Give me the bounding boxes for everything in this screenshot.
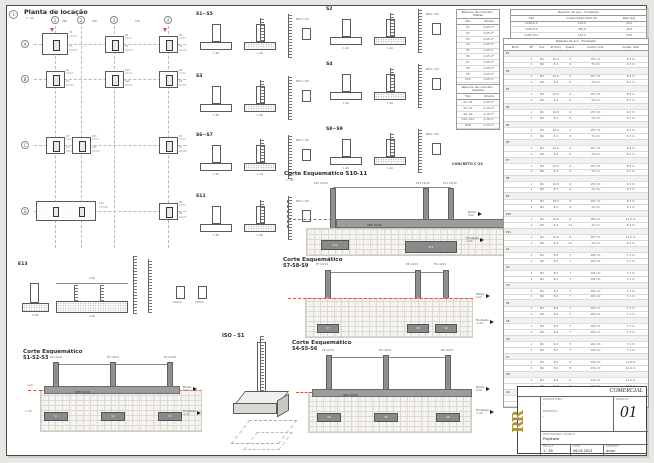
rebar-elevation <box>288 76 292 120</box>
table-cell: 1 <box>527 360 536 365</box>
table-cell: N1 <box>536 360 549 365</box>
table-cell: 0.05 m³ <box>479 37 499 42</box>
table-cell: N1 <box>536 128 549 133</box>
plan-footing <box>42 33 68 55</box>
table-cell: N2 <box>536 295 549 300</box>
footing: S2 <box>101 412 125 421</box>
pilar-size: 19/19 <box>179 205 186 208</box>
footing: S4 <box>317 413 341 422</box>
table-cell <box>504 253 527 258</box>
table-cell <box>504 378 527 383</box>
table-steel-summary: Resumo de aço - FundaçãoTipoComprimento … <box>510 9 647 40</box>
footing-label: S4 <box>327 416 330 419</box>
table-cell: 1 <box>527 378 536 383</box>
table-cell: 0.05 m³ <box>479 60 499 65</box>
plan-grid-bubble: C <box>21 141 29 149</box>
section-cut-flag <box>163 28 167 32</box>
level-flag-icon <box>478 212 482 216</box>
detail-label: S1~S5 <box>196 12 213 17</box>
divider <box>603 444 604 455</box>
table-cell: 102 cm <box>577 324 613 329</box>
stirrup-icon <box>176 286 185 299</box>
footing: S10 <box>321 240 349 250</box>
dim-text: 1.40 <box>374 167 406 170</box>
plan-footing <box>46 71 65 88</box>
rebar <box>260 200 264 226</box>
dim-text: 0.60 <box>22 314 49 317</box>
table-cell: 6.3 <box>549 241 563 246</box>
table-cell: 7 <box>563 348 577 353</box>
rebar-elevation <box>148 259 152 313</box>
base-outline <box>374 92 406 100</box>
dim-line <box>327 272 446 273</box>
table-cell: N2 <box>536 223 549 228</box>
base-outline <box>330 157 362 165</box>
base-outline <box>200 104 232 112</box>
table-cell: 187 cm <box>577 235 613 240</box>
table-cell: 6.7 m <box>613 63 648 68</box>
table-cell: 10.0 <box>549 92 563 97</box>
divider <box>570 444 571 455</box>
table-cell: 6.3 <box>549 170 563 175</box>
table-cell <box>504 271 527 276</box>
table-cell: N2 <box>536 134 549 139</box>
table-cell: 1 <box>527 146 536 151</box>
table-cell: 11.9 m <box>613 366 648 371</box>
dim-text: 1.40 <box>244 234 276 237</box>
rebar-note: Ø8.0 c/15 <box>296 200 309 203</box>
table-cell: N1 <box>536 217 549 222</box>
table-cell: 4 <box>563 128 577 133</box>
table-cell: 0.74 m³ <box>479 124 499 129</box>
table-cell: 8.0 <box>549 253 563 258</box>
table-cell: 1 <box>527 200 536 205</box>
column-stub <box>53 141 60 152</box>
table-cell <box>504 241 527 246</box>
plan-footing <box>159 203 178 220</box>
level-elev: -1.40 <box>466 240 479 243</box>
plan-grid-line <box>114 26 115 248</box>
plan-dim: 260 <box>62 21 67 24</box>
table-cell: 74 cm <box>577 170 613 175</box>
table-cell: 8.0 <box>549 324 563 329</box>
table-cell: 8.0 <box>549 271 563 276</box>
table-cell: 7.1 m <box>613 312 648 317</box>
table-cell: 6.3 m <box>613 110 648 115</box>
table-cell: 10.0 <box>549 164 563 169</box>
table-cell: 6.3 m <box>613 200 648 205</box>
table-cell: 4 <box>563 75 577 80</box>
footing-size: 40x60 <box>179 50 187 53</box>
drawn-value: Autor <box>606 449 615 453</box>
grade-beam: VB1 15/30 <box>336 219 516 228</box>
table-cell: 6.7 m <box>613 80 648 85</box>
table-cell: 4 <box>563 200 577 205</box>
table-cell: 0.26 m³ <box>479 118 499 123</box>
table-cell: 8.0 <box>549 360 563 365</box>
dim-text: 1.20 <box>374 47 406 50</box>
footing: S8 <box>407 324 429 333</box>
table-cell <box>504 98 527 103</box>
column-outline <box>342 74 351 92</box>
dim-line <box>333 187 451 188</box>
table-cell <box>504 324 527 329</box>
table-cell: 1 <box>527 164 536 169</box>
plan-dim: 540 <box>135 21 140 24</box>
table-cell: 8.0 <box>549 348 563 353</box>
table-cell: N2 <box>536 366 549 371</box>
table-cell: 9 <box>563 188 577 193</box>
sheet-number: 01 <box>620 402 637 422</box>
table-cell: 132 cm <box>577 360 613 365</box>
table-cell: 157 cm <box>577 57 613 62</box>
table-cell: 11 <box>563 223 577 228</box>
column-tag: P11 19/19 <box>416 182 430 185</box>
base-outline <box>330 92 362 100</box>
table-cell: 11.9 m <box>613 360 648 365</box>
table-cell: 102 cm <box>577 253 613 258</box>
table-cell: N1 <box>536 307 549 312</box>
level-elev: 0.00 <box>476 389 484 392</box>
footing-size: 40x60 <box>92 151 100 154</box>
table-cell: 7.1 m <box>613 289 648 294</box>
address-value: - <box>543 414 544 418</box>
rebar-elevation <box>418 64 422 108</box>
stirrup-icon <box>302 90 311 102</box>
dim-text: 1.40 <box>200 114 232 117</box>
divider <box>613 396 614 431</box>
footing: S3 <box>158 412 182 421</box>
section-scale: 1 : 20 <box>286 179 294 182</box>
footing-detail: S8~S91.401.40Ø8.0 c/15 <box>326 127 454 177</box>
level-elev-red: -1.40 <box>25 410 32 413</box>
address-label: ENDEREÇO <box>543 410 558 413</box>
footing-label: S9 <box>444 327 447 330</box>
table-cell: 6.7 m <box>613 188 648 193</box>
level-elev: 0.00 <box>468 214 476 217</box>
table-cell: 1 <box>527 80 536 85</box>
table-cell: N2 <box>536 80 549 85</box>
table-cell: N2 <box>536 63 549 68</box>
table-cell: 10.0 <box>549 128 563 133</box>
column-stub <box>166 207 173 218</box>
plan-footing <box>72 137 91 154</box>
rebar-note: Ø8.0 c/15 <box>426 68 439 71</box>
table-cell: 0.05 m³ <box>479 54 499 59</box>
dim-text: 1.20 <box>200 52 232 55</box>
table-cell: 1 <box>527 271 536 276</box>
footing: S6 <box>436 413 460 422</box>
stirrup-label: 19x19 <box>195 301 203 304</box>
table-cell: 6.3 <box>549 152 563 157</box>
table-cell: 10.0 <box>549 146 563 151</box>
table-cell: 102 cm <box>577 312 613 317</box>
plan-grid-bubble: 3 <box>110 16 118 24</box>
table-cell: N1 <box>536 378 549 383</box>
base-outline <box>22 303 49 312</box>
table-cell: Nº <box>527 45 536 50</box>
table-cell: CA50-6.3 <box>511 22 552 27</box>
footing: S9 <box>435 324 457 333</box>
table-cell: Tipo <box>457 19 479 24</box>
section-title: Corte Esquemático S10-11 <box>284 172 367 178</box>
table-cell: 1 <box>527 223 536 228</box>
table-cell <box>504 200 527 205</box>
sheet-label: PRANCHA <box>616 398 629 401</box>
owner-value: - <box>543 402 544 406</box>
pilar-size: 19/19 <box>92 139 99 142</box>
plan-dim: 330 <box>92 21 97 24</box>
drawn-label: DESENHO <box>606 445 619 448</box>
table-cell: 7.1 m <box>613 259 648 264</box>
table-cell: 10.0 <box>549 110 563 115</box>
table-cell: 0.05 m³ <box>479 25 499 30</box>
scale-value: 1 : 50 <box>543 449 553 453</box>
table-cell: 1 <box>527 241 536 246</box>
table-cell: N2 <box>536 152 549 157</box>
table-cell: 102 cm <box>577 259 613 264</box>
table-cell <box>504 330 527 335</box>
footing: S1 <box>44 412 68 421</box>
column-tag: P10 19/19 <box>314 182 328 185</box>
stirrup-icon <box>198 286 207 299</box>
table-cell: 1 <box>527 348 536 353</box>
table-cell: 7 <box>563 271 577 276</box>
table-cell: 6.3 m <box>613 164 648 169</box>
dim-line <box>56 283 128 284</box>
base-outline <box>244 42 276 50</box>
column-outline <box>212 206 221 224</box>
level-flag-icon <box>480 238 484 242</box>
level-flag-icon <box>486 294 490 298</box>
plan-grid-bubble: 2 <box>77 16 85 24</box>
table-cell: 9 <box>563 116 577 121</box>
section-subtitle: S4-S5-S6 <box>292 347 317 352</box>
table-cell: 6.3 m <box>613 146 648 151</box>
table-cell: 7.1 m <box>613 295 648 300</box>
table-cell: 1 <box>527 188 536 193</box>
plan-grid-bubble: 1 <box>51 16 59 24</box>
stirrup-icon <box>432 23 441 35</box>
column-stub <box>53 207 59 217</box>
column-stub <box>53 40 60 51</box>
footing-size: 40x60 <box>179 217 187 220</box>
rebar-elevation <box>288 196 292 240</box>
table-cell: 74 cm <box>577 134 613 139</box>
table-cell: P9 <box>457 72 479 77</box>
plan-footing <box>105 36 124 53</box>
table-cell: 0.05 m³ <box>479 31 499 36</box>
table-cell: N2 <box>536 116 549 121</box>
rebar <box>100 285 104 301</box>
base-outline <box>244 224 276 232</box>
table-cell: 6 <box>563 217 577 222</box>
table-cell: N1 <box>536 200 549 205</box>
table-cell: 4 <box>563 146 577 151</box>
detail-label: S3 <box>196 74 203 79</box>
table-cell: 74 cm <box>577 223 613 228</box>
table-cell: 6.3 <box>549 116 563 121</box>
table-cell: 9 <box>563 80 577 85</box>
rebar-note: Ø8.0 c/15 <box>426 133 439 136</box>
table-cell: 74 cm <box>577 205 613 210</box>
base-outline <box>200 163 232 171</box>
table-cell: Total <box>457 124 479 129</box>
table-cell: 10.0 <box>549 75 563 80</box>
plan-grid-bubble: 4 <box>164 16 172 24</box>
table-cell: 8.0 <box>549 366 563 371</box>
table-cell: 4 <box>563 110 577 115</box>
table-cell: 102 cm <box>577 342 613 347</box>
table-cell: 0.10 m³ <box>479 106 499 111</box>
section-cut-flag <box>50 28 54 32</box>
base-outline <box>374 37 406 45</box>
table-cell <box>504 63 527 68</box>
footing-size: 40x60 <box>125 85 133 88</box>
beam-label: VB2 15/30 <box>343 393 358 397</box>
table-cell: P8 <box>457 66 479 71</box>
level-flag-icon <box>490 320 494 324</box>
stirrup-icon <box>432 143 441 155</box>
table-cell <box>504 170 527 175</box>
level-elev: 0.00 <box>183 389 191 392</box>
table-cell: 7 <box>563 307 577 312</box>
table-cell <box>504 182 527 187</box>
column-tag: P6 19/19 <box>441 349 453 352</box>
table-cell: 110.9 <box>552 22 613 27</box>
table-cell: 7.1 m <box>613 253 648 258</box>
dim-text: 1.20 <box>244 173 276 176</box>
table-cell: N1 <box>536 164 549 169</box>
table-cell: 7 <box>563 342 577 347</box>
footing-detail: S1~S51.201.20Ø8.0 c/15 <box>196 12 324 62</box>
table-cell: 7.1 m <box>613 330 648 335</box>
table-cell <box>504 217 527 222</box>
table-cell: 132 cm <box>577 378 613 383</box>
footing: S11 <box>405 241 457 253</box>
table-cell <box>504 312 527 317</box>
column-tag: P8 19/19 <box>406 263 418 266</box>
strip-size: 230x60 <box>99 207 108 210</box>
table-cell: 6.3 <box>549 80 563 85</box>
table-cell: 9 <box>563 378 577 383</box>
table-row: Total0.74 m³ <box>457 124 499 130</box>
table-cell: 1 <box>527 253 536 258</box>
table-cell: 11.2 m <box>613 235 648 240</box>
table-cell: 74 cm <box>577 241 613 246</box>
detail-label: E13 <box>18 262 28 267</box>
table-cell <box>504 277 527 282</box>
table-cell: 46.4 <box>612 27 646 32</box>
table-cell: 102 cm <box>577 289 613 294</box>
table-cell: N1 <box>536 75 549 80</box>
base-outline <box>200 42 232 50</box>
table-cell: 74 cm <box>577 98 613 103</box>
pilar-size: 19/19 <box>125 38 132 41</box>
table-cell: 157 cm <box>577 182 613 187</box>
table-cell: 10.0 <box>549 57 563 62</box>
footing-size: 40x60 <box>125 50 133 53</box>
table-cell: Peso (kg) <box>612 16 646 21</box>
table-cell: 6.3 <box>549 63 563 68</box>
table-cell: 8.0 <box>549 289 563 294</box>
table-cell: 8.0 <box>549 295 563 300</box>
table-cell: 8.0 <box>549 378 563 383</box>
table-cell: P7 <box>457 60 479 65</box>
column-outline <box>30 283 39 303</box>
table-cell <box>504 295 527 300</box>
table-cell: Elem. <box>504 45 527 50</box>
footing-size: 40x60 <box>179 85 187 88</box>
table-cell: 19.2 <box>612 22 646 27</box>
level-marker: Térreo0.00 <box>476 292 490 299</box>
table-cell: 132 cm <box>577 366 613 371</box>
table-cell: 187 cm <box>577 217 613 222</box>
table-cell: 1 <box>527 57 536 62</box>
table-cell: 1 <box>527 205 536 210</box>
table-cell: 1 <box>527 134 536 139</box>
table-cell: 9 <box>563 134 577 139</box>
dim-line <box>329 357 449 358</box>
table-cell: 157 cm <box>577 164 613 169</box>
table-cell: N2 <box>536 259 549 264</box>
table-cell: 1 <box>527 152 536 157</box>
pilar-size: 19/19 <box>125 73 132 76</box>
table-cell: 7.1 m <box>613 307 648 312</box>
table-cell: S1~S5 <box>457 100 479 105</box>
table-cell: 1 <box>527 312 536 317</box>
table-cell <box>504 164 527 169</box>
table-cell: 4 <box>563 92 577 97</box>
level-flag-icon <box>486 387 490 391</box>
table-cell: 157 cm <box>577 128 613 133</box>
base-outline <box>244 104 276 112</box>
table-cell: CA50-8.0 <box>511 27 552 32</box>
table-cell: 10.0 <box>549 235 563 240</box>
footing-label: S6 <box>446 416 449 419</box>
table-cell: 157 cm <box>577 200 613 205</box>
table-cell: 0.05 m³ <box>479 43 499 48</box>
table-cell <box>504 348 527 353</box>
table-cell: 7.1 m <box>613 277 648 282</box>
date-value: 06.05.2023 <box>573 449 592 453</box>
table-cell: N1 <box>536 342 549 347</box>
pilar-size: 19/19 <box>70 36 77 39</box>
footing-detail: S21.201.20Ø8.0 c/15 <box>326 7 454 57</box>
plan-footing <box>46 137 65 154</box>
table-steel-relation: Relação de aço - FundaçãoElem.NºPos.Ø (m… <box>503 38 649 408</box>
table-cell: Comprimento total (m) <box>552 16 613 21</box>
table-cell: N1 <box>536 182 549 187</box>
table-cell: 102 cm <box>577 277 613 282</box>
table-cell: 0.22 m³ <box>479 100 499 105</box>
footing-label: S2 <box>111 415 114 418</box>
section-subtitle: S7-S8-S9 <box>283 264 308 269</box>
detail-label: S11 <box>196 194 206 199</box>
table-cell: 1 <box>527 110 536 115</box>
table-cell: 1 <box>527 217 536 222</box>
dim-text: 1.20 <box>330 102 362 105</box>
level-elev: -1.40 <box>476 412 489 415</box>
table-cell: 7 <box>563 295 577 300</box>
footing-detail: S41.201.20Ø8.0 c/15 <box>326 62 454 112</box>
table-cell: N2 <box>536 312 549 317</box>
level-marker: Térreo0.00 <box>183 385 197 392</box>
table-cell: 7 <box>563 253 577 258</box>
table-cell: 1 <box>527 63 536 68</box>
table-cell: Quant. <box>563 45 577 50</box>
table-cell <box>504 128 527 133</box>
